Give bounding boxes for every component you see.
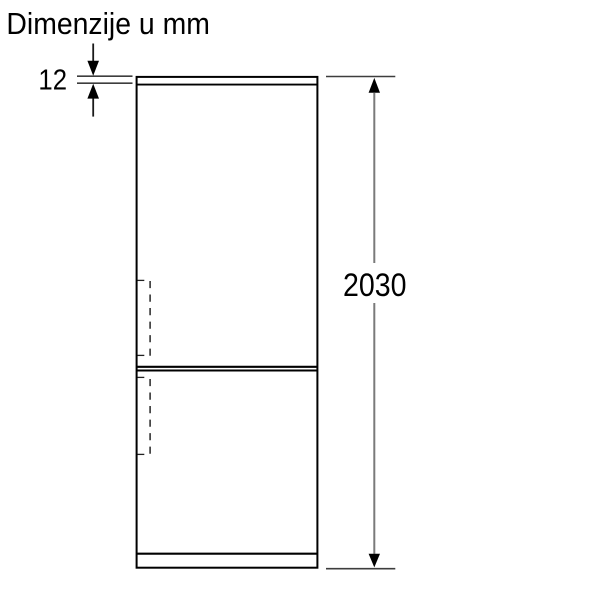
svg-text:2030: 2030 <box>343 267 407 303</box>
svg-text:12: 12 <box>38 64 67 96</box>
svg-text:Dimenzije u mm: Dimenzije u mm <box>6 7 210 41</box>
